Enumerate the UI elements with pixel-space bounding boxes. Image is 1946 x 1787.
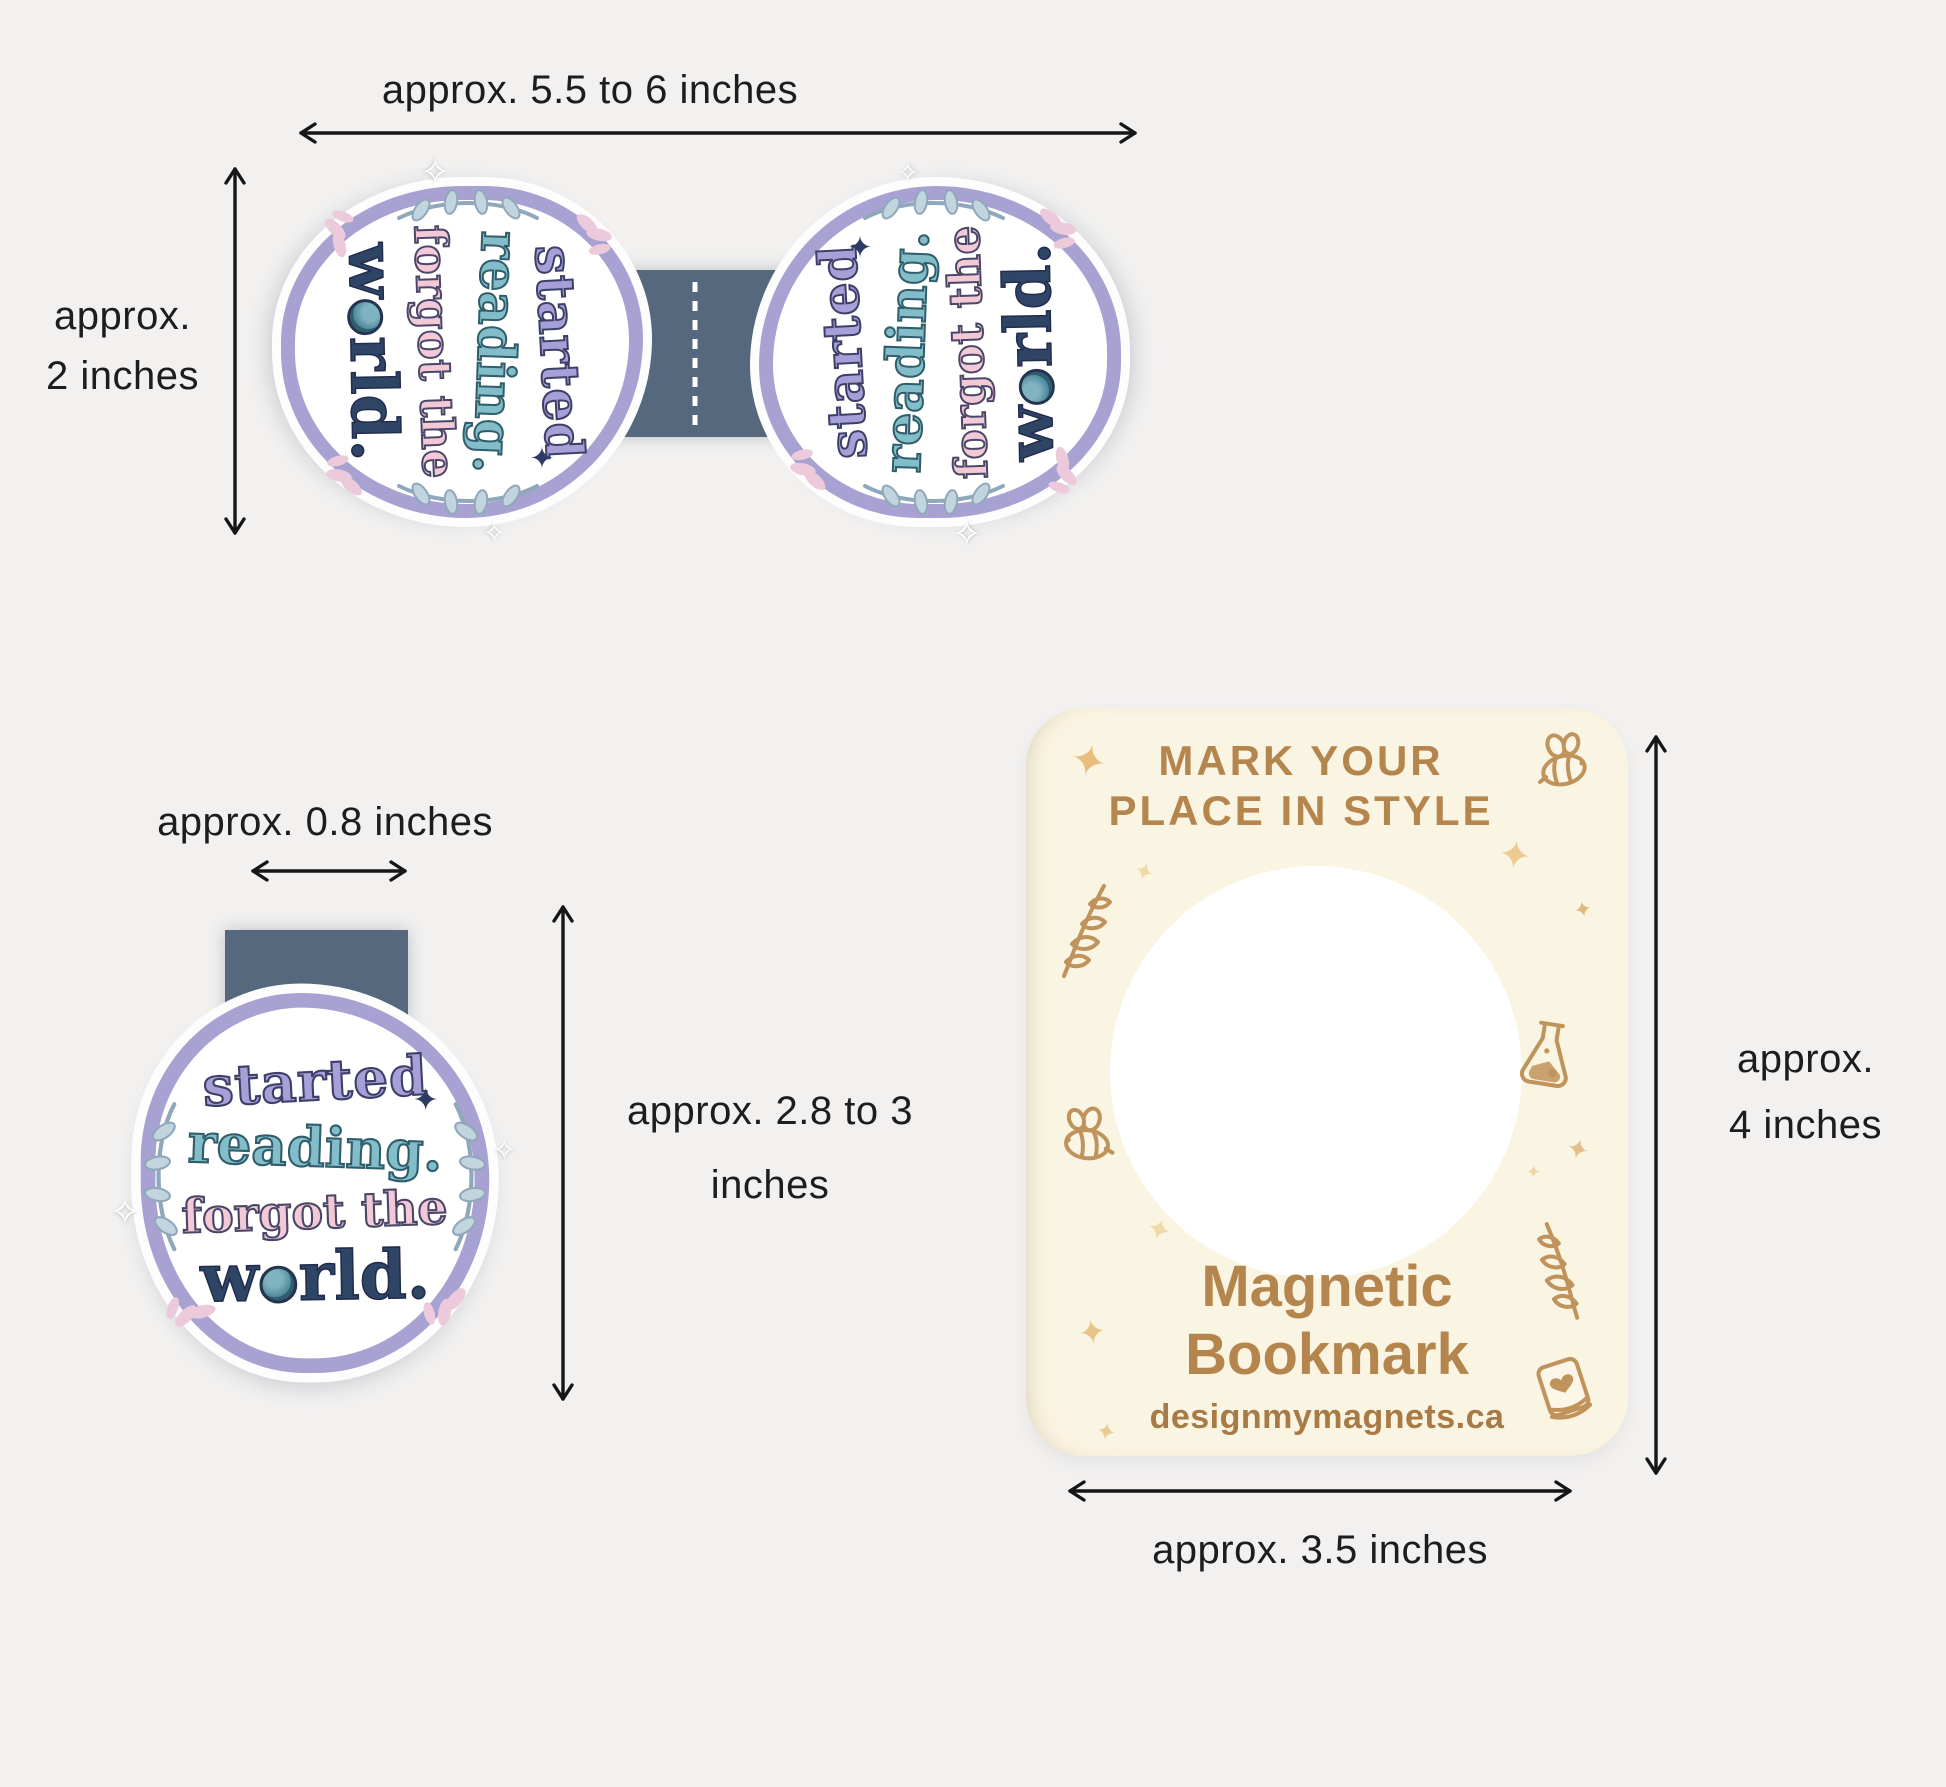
sparkle-icon: ✧ bbox=[109, 1195, 141, 1233]
sparkle-icon: ✧ bbox=[415, 156, 451, 186]
sparkle-icon: ✦ bbox=[1563, 1133, 1593, 1166]
sparkle-icon: ✦ bbox=[1495, 834, 1534, 878]
folded-width-label: approx. 0.8 inches bbox=[115, 792, 535, 852]
sparkle-icon: ✧ bbox=[479, 521, 507, 544]
globe-icon bbox=[347, 299, 383, 335]
sparkle-icon: ✧ bbox=[895, 160, 923, 183]
sticker-quote: started reading. forgot the wrld. bbox=[137, 989, 494, 1378]
globe-icon bbox=[1019, 369, 1055, 405]
sticker-quote: started reading. forgot the wrld. bbox=[277, 182, 647, 522]
sparkle-icon: ✦ bbox=[1094, 1418, 1119, 1446]
quote-line2: reading. bbox=[461, 230, 530, 475]
sparkle-icon: ✦ bbox=[525, 445, 555, 470]
sparkle-icon: ✦ bbox=[1526, 1164, 1541, 1182]
product-dimensions-diagram: approx. 5.5 to 6 inches approx. 2 inches bbox=[0, 0, 1946, 1787]
card-height-arrow bbox=[1643, 725, 1669, 1485]
card-height-label-line1: approx. bbox=[1688, 1026, 1923, 1092]
leaf-branch-icon bbox=[1054, 880, 1112, 980]
card-title: MARK YOUR PLACE IN STYLE bbox=[1066, 736, 1536, 837]
unfolded-back-sticker: ✦ ✧ ✧ started reading. forgot the wrld. bbox=[755, 182, 1125, 522]
bee-icon bbox=[1048, 1101, 1128, 1172]
unfolded-width-arrow bbox=[285, 120, 1151, 146]
quote-line3: forgot the bbox=[937, 225, 999, 480]
folded-height-label-line2: inches bbox=[555, 1148, 985, 1222]
sparkle-icon: ✦ bbox=[1572, 898, 1595, 923]
quote-line3: forgot the bbox=[181, 1179, 449, 1244]
flask-icon bbox=[1513, 1016, 1582, 1096]
card-title-line2: PLACE IN STYLE bbox=[1066, 786, 1536, 836]
sparkle-icon: ✦ bbox=[413, 1085, 439, 1117]
sticker-quote: started reading. forgot the wrld. bbox=[755, 182, 1125, 522]
card-width-arrow bbox=[1060, 1478, 1580, 1504]
quote-line1: started bbox=[522, 243, 594, 461]
quote-line3: forgot the bbox=[404, 225, 466, 480]
leaf-branch-icon bbox=[1529, 1217, 1597, 1323]
card-title-line1: MARK YOUR bbox=[1066, 736, 1536, 786]
card-height-label-line2: 4 inches bbox=[1688, 1092, 1923, 1158]
folded-height-label: approx. 2.8 to 3 inches bbox=[555, 1074, 985, 1222]
folded-height-label-line1: approx. 2.8 to 3 bbox=[555, 1074, 985, 1148]
bee-icon bbox=[1526, 732, 1598, 794]
quote-line2: reading. bbox=[187, 1111, 444, 1184]
folded-front-sticker: ✦ ✧ ✧ started reading. forgot the wrld. bbox=[137, 989, 494, 1378]
sparkle-icon: ✦ bbox=[1131, 857, 1158, 886]
unfolded-width-label: approx. 5.5 to 6 inches bbox=[270, 60, 910, 120]
quote-line2: reading. bbox=[872, 230, 941, 475]
quote-line4: wrld. bbox=[333, 242, 412, 462]
quote-line4: wrld. bbox=[200, 1236, 431, 1319]
unfolded-height-label-line1: approx. bbox=[15, 286, 230, 346]
sparkle-icon: ✦ bbox=[1142, 1213, 1175, 1249]
quote-line1: started bbox=[201, 1044, 430, 1120]
quote-line4: wrld. bbox=[990, 242, 1069, 462]
sparkle-icon: ✧ bbox=[951, 518, 987, 548]
sparkle-icon: ✧ bbox=[492, 1136, 517, 1165]
sparkle-icon: ✦ bbox=[1076, 1314, 1109, 1352]
card-height-label: approx. 4 inches bbox=[1688, 1026, 1923, 1158]
globe-icon bbox=[259, 1266, 297, 1304]
unfolded-height-label-line2: 2 inches bbox=[15, 346, 230, 406]
quote-line1: started bbox=[807, 243, 879, 461]
unfolded-height-label: approx. 2 inches bbox=[15, 286, 230, 406]
unfolded-front-sticker: ✦ ✧ ✧ started reading. forgot the wrld. bbox=[277, 182, 647, 522]
sparkle-icon: ✦ bbox=[847, 234, 877, 259]
fold-dotted-line bbox=[693, 282, 698, 425]
card-width-label: approx. 3.5 inches bbox=[1060, 1520, 1580, 1580]
folded-width-arrow bbox=[243, 858, 415, 884]
backing-card: MARK YOUR PLACE IN STYLE ✦ ✦ ✦ ✦ bbox=[1026, 708, 1628, 1456]
